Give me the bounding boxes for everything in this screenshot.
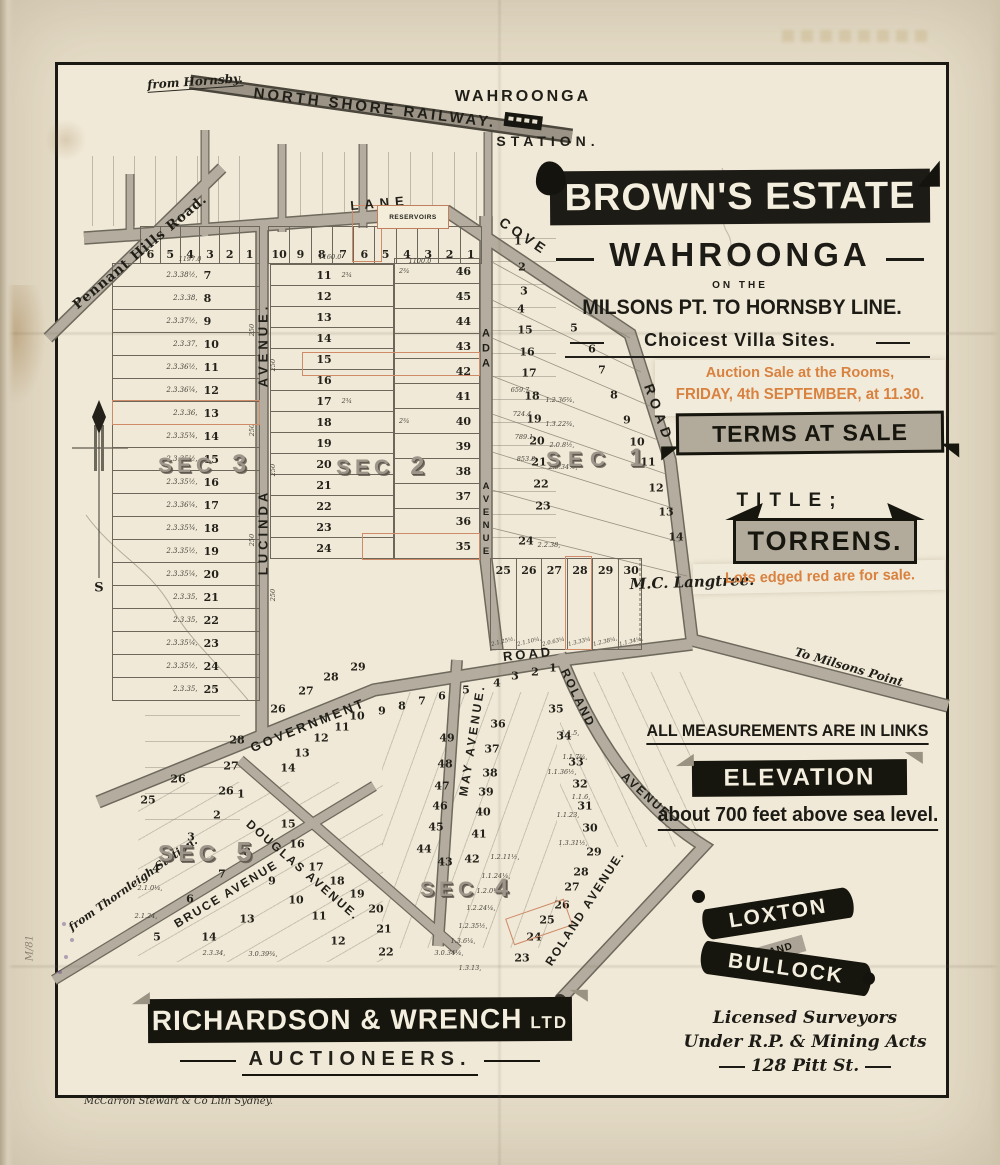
lithographer-imprint: McCarron Stewart & Co Lith Sydney. xyxy=(84,1096,273,1107)
measurements-note: ALL MEASUREMENTS ARE IN LINKS xyxy=(635,722,941,745)
lot-row: 2.3.38½,7 xyxy=(113,264,259,286)
lot-row: 2¾17 xyxy=(271,390,393,411)
lot-row: 2.3.35½,19 xyxy=(113,539,259,562)
lot-row: 19 xyxy=(271,432,393,453)
lot-cell: 252.1.25½, xyxy=(491,559,516,649)
lot-row: 22 xyxy=(271,495,393,516)
terms-at-sale-banner: TERMS AT SALE xyxy=(676,411,944,456)
lot-row: 2.3.35,22 xyxy=(113,608,259,631)
lot-cell: 6 xyxy=(353,227,374,263)
stamp-dot xyxy=(62,922,66,926)
stamp-dot xyxy=(70,938,74,942)
auctioneers-firm: RICHARDSON & WRENCH xyxy=(152,997,523,1043)
lot-cell: 9 xyxy=(289,227,310,263)
lot-row: 42 xyxy=(395,358,479,383)
lot-row: 36 xyxy=(395,508,479,533)
lot-row: 44 xyxy=(395,308,479,333)
lot-cell: 272.0.63¼, xyxy=(541,559,567,649)
ribbon-curl xyxy=(862,972,875,985)
lot-row: 2¾11 xyxy=(271,265,393,285)
reservoirs-label: RESERVOIRS xyxy=(377,205,449,229)
lot-row: 2.3.35,25 xyxy=(113,677,259,700)
lot-row: 2.3.35¾,14 xyxy=(113,424,259,447)
elevation-banner: ELEVATION xyxy=(692,759,907,797)
lot-cell: 10 xyxy=(269,227,289,263)
stamp-dot xyxy=(64,955,68,959)
section-3-label: SEC3 xyxy=(158,450,251,479)
ada-avenue-label: ADA xyxy=(480,328,492,373)
lot-cell: 7 xyxy=(332,227,353,263)
lucinda-avenue-label-2: AVENUE. xyxy=(256,303,271,388)
lot-row: 23 xyxy=(271,516,393,537)
lot-row: 45 xyxy=(395,283,479,308)
lot-cell: 8 xyxy=(311,227,332,263)
lot-row: 13 xyxy=(271,306,393,327)
lot-row: 16 xyxy=(271,369,393,390)
sec3-lot-rows: 2.3.38½,72.3.38,82.3.37½,92.3.37,102.3.3… xyxy=(112,263,260,701)
locality-title: WAHROONGA xyxy=(560,236,920,274)
station-word-label: STATION. xyxy=(496,133,599,149)
auction-line-1: Auction Sale at the Rooms, xyxy=(664,364,936,381)
auction-line-2: FRIDAY, 4th SEPTEMBER, at 11.30. xyxy=(656,386,943,404)
lot-row: 2.3.35,21 xyxy=(113,585,259,608)
stamp-dot xyxy=(58,970,62,974)
lot-row: 2.3.36¼,12 xyxy=(113,378,259,401)
section-5-label: SEC5 xyxy=(158,836,257,868)
surveyor-address: 128 Pitt St. xyxy=(700,1056,910,1076)
lot-row: 43 xyxy=(395,333,479,358)
lot-row: 41 xyxy=(395,383,479,408)
lot-row: 2.3.37½,9 xyxy=(113,309,259,332)
lots-25-30: 252.1.25½,262.1.10¼,272.0.63¼,281.3.33¼,… xyxy=(490,558,642,650)
lot-row: 2.3.35¾,18 xyxy=(113,516,259,539)
ada-lot-column: 2¾4645444342412¾403938373635 xyxy=(394,258,480,559)
lot-row: 2.3.35½,24 xyxy=(113,654,259,677)
lot-row: 2.3.36,13 xyxy=(113,401,259,424)
lot-cell: 3 xyxy=(199,227,219,263)
ada-avenue-label-2: AVENUE xyxy=(481,481,492,559)
lot-cell: 291.2.38¼, xyxy=(592,559,618,649)
estate-title-ribbon: BROWN'S ESTATE xyxy=(550,169,930,226)
estate-map-poster: WAHROONGA BROWN'S ESTATE xyxy=(0,0,1000,1165)
lot-row: 37 xyxy=(395,483,479,508)
divider-rule xyxy=(565,356,930,358)
station-place-label: WAHROONGA xyxy=(455,88,591,106)
lot-row: 2.3.35¼,23 xyxy=(113,631,259,654)
lot-row: 2¾46 xyxy=(395,259,479,283)
lot-row: 2.3.35¼,20 xyxy=(113,562,259,585)
sec2-lot-rows: 2¾1112131415162¾1718192021222324 xyxy=(270,264,394,559)
auctioneers-suffix: LTD xyxy=(530,1001,568,1045)
lot-cell: 1 xyxy=(239,227,259,263)
auctioneers-banner: RICHARDSON & WRENCH LTD xyxy=(148,997,572,1043)
section-2-label: SEC2 xyxy=(336,452,429,481)
railway-line-text: MILSONS PT. TO HORNSBY LINE. xyxy=(562,296,923,320)
lot-cell: 5 xyxy=(374,227,395,263)
on-the-text: ON THE xyxy=(560,280,920,291)
lot-cell: 281.3.33¼, xyxy=(567,559,593,649)
surveyor-line-1: Licensed Surveyors xyxy=(690,1008,920,1028)
villa-sites-text: Choicest Villa Sites. xyxy=(560,330,920,351)
lot-cell: 301.1.34¼, xyxy=(618,559,644,649)
auctioneers-role: AUCTIONEERS. xyxy=(200,1048,520,1076)
lot-cell: 4 xyxy=(180,227,200,263)
paper-fold xyxy=(497,0,502,1165)
lucinda-avenue-label: LUCINDA xyxy=(256,489,271,576)
lot-cell: 262.1.10¼, xyxy=(516,559,542,649)
lot-row: 15 xyxy=(271,348,393,369)
lot-row: 24 xyxy=(271,537,393,558)
lot-row: 2.3.36½,11 xyxy=(113,355,259,378)
lot-row: 2.3.38,8 xyxy=(113,286,259,309)
surveyor-line-2: Under R.P. & Mining Acts xyxy=(680,1032,930,1052)
lot-row: 35 xyxy=(395,533,479,558)
lot-cell: 2 xyxy=(219,227,239,263)
lot-row: 2¾40 xyxy=(395,408,479,433)
margin-note: M/81 xyxy=(25,935,36,961)
lot-row: 18 xyxy=(271,411,393,432)
torrens-banner: TORRENS. xyxy=(733,518,917,564)
elevation-text: about 700 feet above sea level. xyxy=(654,804,942,831)
section-4-label: SEC4 xyxy=(420,874,513,903)
lot-row: 12 xyxy=(271,285,393,306)
compass-south-label: S xyxy=(94,581,103,596)
section-1-label: SEC1 xyxy=(546,444,651,473)
lot-row: 2.3.36¼,17 xyxy=(113,493,259,516)
ribbon-curl xyxy=(692,890,705,903)
